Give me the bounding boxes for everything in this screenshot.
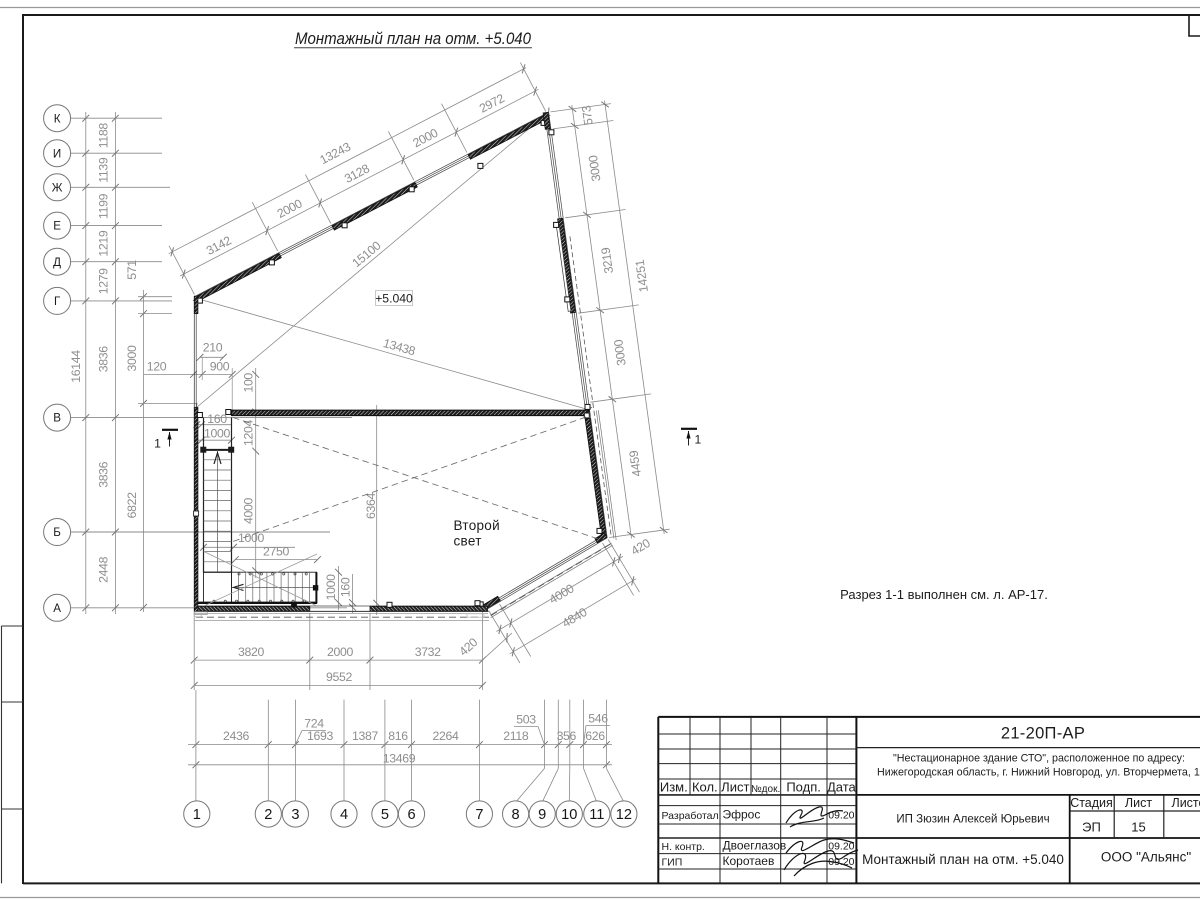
svg-text:2000: 2000 <box>327 645 353 659</box>
svg-text:Двоеглазов: Двоеглазов <box>723 839 787 853</box>
svg-text:Разрез 1-1 выполнен см. л. АР-: Разрез 1-1 выполнен см. л. АР-17. <box>840 587 1048 602</box>
svg-text:6: 6 <box>407 807 415 823</box>
svg-text:"Нестационарное здание СТО", р: "Нестационарное здание СТО", расположенн… <box>893 753 1185 765</box>
svg-text:900: 900 <box>210 360 230 374</box>
svg-text:1: 1 <box>193 807 201 823</box>
svg-text:свет: свет <box>454 534 482 549</box>
svg-text:503: 503 <box>516 712 536 726</box>
svg-text:6364: 6364 <box>364 493 378 519</box>
svg-text:Стадия: Стадия <box>1070 796 1113 810</box>
svg-text:13469: 13469 <box>383 751 416 765</box>
svg-text:Лист: Лист <box>721 780 749 795</box>
svg-text:2264: 2264 <box>433 729 459 743</box>
svg-text:2436: 2436 <box>223 729 249 743</box>
svg-text:160: 160 <box>339 577 353 597</box>
svg-text:ООО "Альянс": ООО "Альянс" <box>1101 850 1191 865</box>
svg-text:120: 120 <box>147 360 167 374</box>
svg-text:3: 3 <box>291 807 299 823</box>
svg-text:ЭП: ЭП <box>1082 820 1101 835</box>
svg-text:816: 816 <box>388 729 408 743</box>
svg-text:11: 11 <box>589 807 604 823</box>
svg-text:573: 573 <box>579 104 596 126</box>
svg-text:10: 10 <box>561 807 577 823</box>
svg-text:1000: 1000 <box>238 531 264 545</box>
svg-text:Монтажный план на отм. +5.040: Монтажный план на отм. +5.040 <box>295 29 531 48</box>
svg-text:1204: 1204 <box>242 420 256 446</box>
svg-text:626: 626 <box>585 729 605 743</box>
svg-text:Б: Б <box>53 526 61 539</box>
svg-text:9552: 9552 <box>326 670 352 684</box>
svg-text:1279: 1279 <box>97 268 111 294</box>
svg-text:546: 546 <box>588 711 608 725</box>
svg-text:ИП Зюзин Алексей Юрьевич: ИП Зюзин Алексей Юрьевич <box>896 814 1049 826</box>
svg-text:100: 100 <box>242 373 256 393</box>
svg-text:Подп.: Подп. <box>786 780 821 795</box>
svg-text:571: 571 <box>125 260 139 280</box>
svg-text:К: К <box>54 112 61 125</box>
svg-text:Листов: Листов <box>1172 796 1200 810</box>
svg-text:1219: 1219 <box>97 230 111 256</box>
svg-text:2750: 2750 <box>263 545 289 559</box>
svg-text:Е: Е <box>53 220 61 233</box>
svg-text:210: 210 <box>203 341 223 355</box>
svg-text:3732: 3732 <box>415 645 441 659</box>
svg-text:Монтажный план на отм. +5.040: Монтажный план на отм. +5.040 <box>862 852 1064 867</box>
svg-text:Нижегородская область, г. Нижн: Нижегородская область, г. Нижний Новгоро… <box>877 767 1200 779</box>
svg-text:9: 9 <box>538 807 546 823</box>
svg-text:И: И <box>53 147 61 160</box>
svg-text:1188: 1188 <box>97 123 111 149</box>
svg-text:Второй: Второй <box>454 518 500 533</box>
svg-text:724: 724 <box>304 716 324 730</box>
svg-text:5: 5 <box>381 807 389 823</box>
svg-text:Эфрос: Эфрос <box>723 808 761 822</box>
svg-text:2448: 2448 <box>97 556 111 582</box>
svg-text:1000: 1000 <box>204 427 230 441</box>
svg-text:ГИП: ГИП <box>662 856 683 868</box>
svg-text:Изм.: Изм. <box>660 780 688 795</box>
svg-text:Д: Д <box>53 256 61 269</box>
svg-text:+5.040: +5.040 <box>375 291 413 305</box>
svg-text:12: 12 <box>616 807 632 823</box>
svg-text:2: 2 <box>264 807 272 823</box>
svg-text:15: 15 <box>1131 820 1145 835</box>
svg-text:3820: 3820 <box>238 645 264 659</box>
svg-text:21-20П-АР: 21-20П-АР <box>1001 725 1085 743</box>
svg-text:1: 1 <box>695 433 702 447</box>
svg-text:А: А <box>53 602 61 615</box>
svg-text:4: 4 <box>340 807 348 823</box>
svg-text:Лист: Лист <box>1125 796 1152 810</box>
svg-text:16144: 16144 <box>69 350 83 383</box>
svg-text:1387: 1387 <box>352 729 378 743</box>
svg-text:2118: 2118 <box>503 729 529 743</box>
svg-text:1199: 1199 <box>97 193 111 219</box>
svg-text:3000: 3000 <box>125 345 139 371</box>
svg-text:6822: 6822 <box>125 492 139 518</box>
svg-text:4000: 4000 <box>242 498 256 524</box>
svg-text:Кол.: Кол. <box>692 780 718 795</box>
svg-text:3836: 3836 <box>97 461 111 487</box>
svg-text:В: В <box>53 412 61 425</box>
svg-text:№док.: №док. <box>751 784 780 795</box>
svg-text:160: 160 <box>207 412 227 426</box>
svg-text:356: 356 <box>557 729 577 743</box>
svg-text:Г: Г <box>54 295 61 308</box>
svg-text:1139: 1139 <box>97 157 111 183</box>
svg-text:7: 7 <box>475 807 483 823</box>
svg-text:1: 1 <box>154 437 161 451</box>
svg-text:Коротаев: Коротаев <box>723 854 775 868</box>
svg-text:Н. контр.: Н. контр. <box>662 841 705 853</box>
svg-text:Дата: Дата <box>827 780 857 795</box>
svg-text:Ж: Ж <box>52 181 63 194</box>
svg-text:8: 8 <box>512 807 520 823</box>
svg-text:Разработал: Разработал <box>662 810 719 822</box>
svg-text:3836: 3836 <box>97 346 111 372</box>
svg-text:1000: 1000 <box>324 574 338 600</box>
